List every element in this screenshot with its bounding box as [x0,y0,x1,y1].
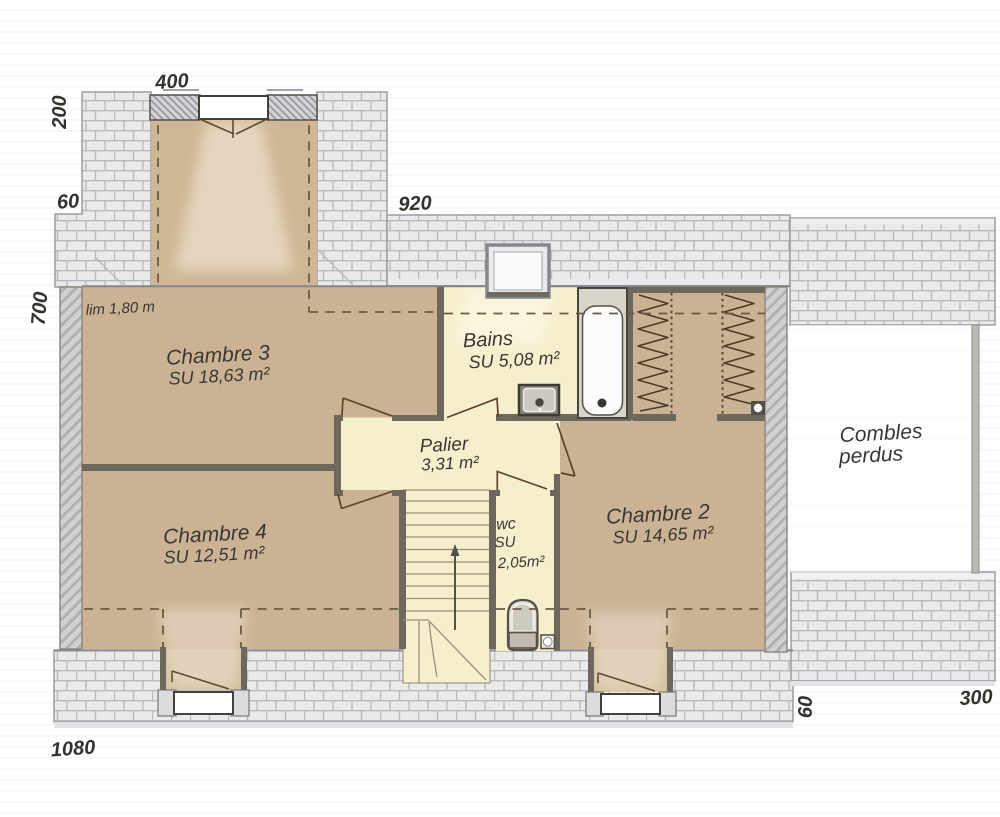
svg-text:200: 200 [49,95,71,129]
svg-text:400: 400 [154,70,190,94]
svg-text:60: 60 [56,190,80,213]
svg-text:1080: 1080 [50,736,96,761]
svg-text:lim 1,80 m: lim 1,80 m [85,298,155,319]
svg-text:SU: SU [494,533,516,551]
svg-text:perdus: perdus [837,442,904,468]
svg-text:60: 60 [795,696,817,718]
svg-text:300: 300 [959,686,994,710]
svg-text:920: 920 [398,192,432,216]
svg-text:700: 700 [28,291,53,326]
svg-text:2,05m²: 2,05m² [496,553,546,573]
svg-text:wc: wc [496,515,516,533]
svg-text:Bains: Bains [462,328,513,353]
svg-text:3,31 m²: 3,31 m² [421,452,481,474]
